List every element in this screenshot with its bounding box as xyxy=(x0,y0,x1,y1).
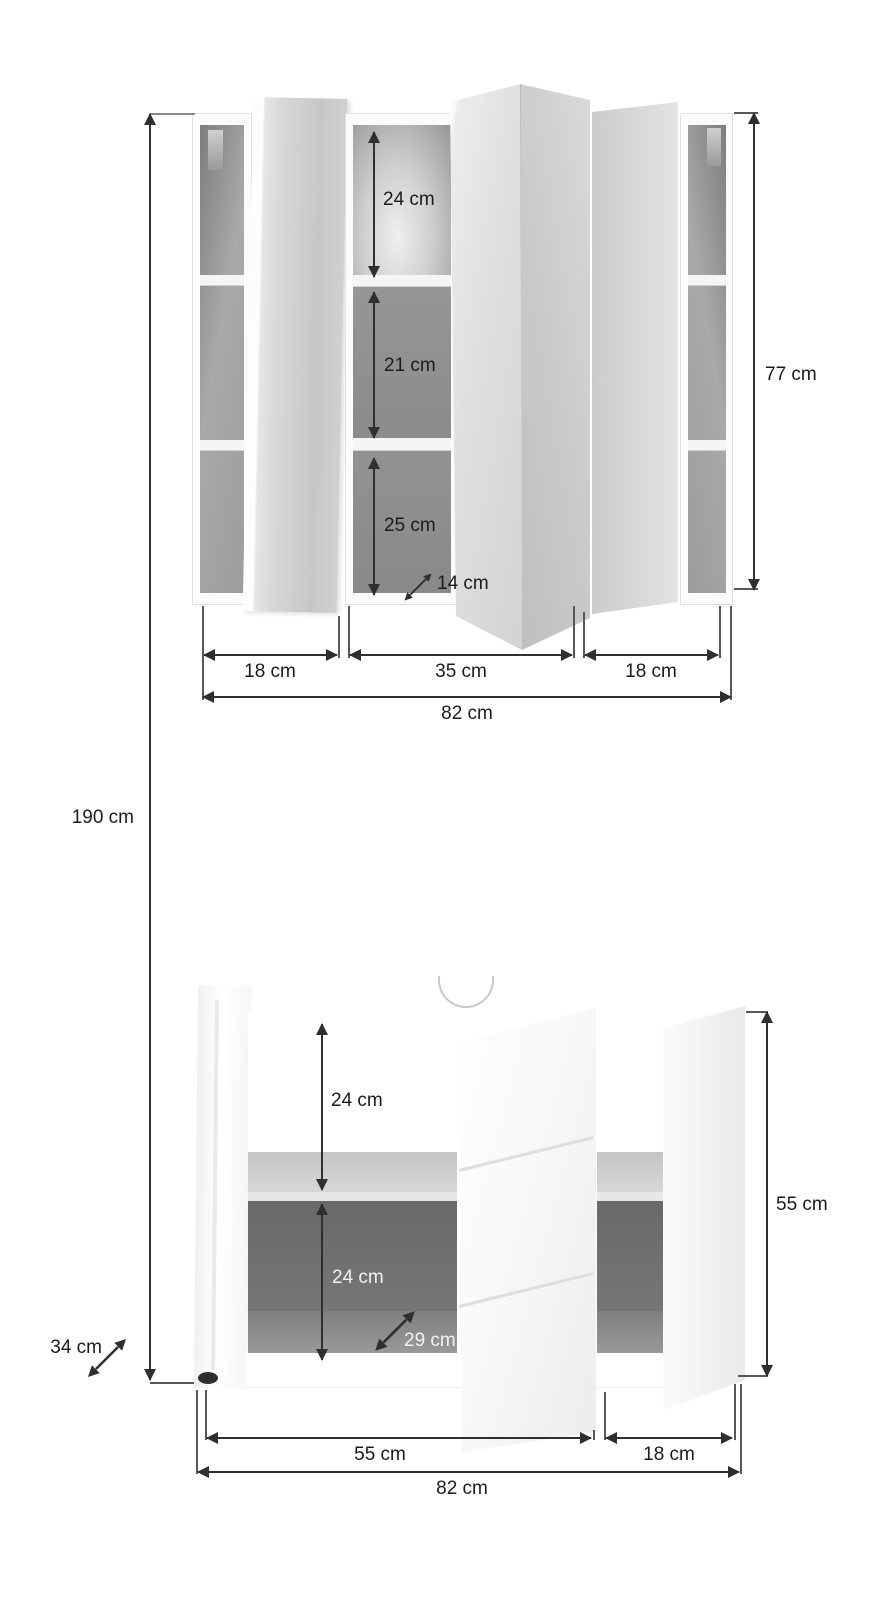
extension-line xyxy=(338,616,340,658)
dim-vanity-section-left-line xyxy=(207,1437,591,1439)
mirror-door-left xyxy=(243,97,348,613)
furniture-dimension-diagram: 190 cm 77 cm 24 cm 21 cm 25 cm 14 cm 18 … xyxy=(0,0,883,1600)
vanity-bottom-panel xyxy=(246,1353,664,1388)
dim-label-body-depth: 34 cm xyxy=(28,1337,102,1359)
dim-label-vanity-width: 82 cm xyxy=(402,1478,522,1500)
dim-label-mirror-cabinet-width: 82 cm xyxy=(407,703,527,725)
dim-vanity-compartment-2-line xyxy=(321,1204,323,1360)
mirror-door-right xyxy=(592,102,678,614)
extension-line xyxy=(573,606,575,658)
center-shelf-lower xyxy=(353,438,451,451)
left-column-shelf xyxy=(200,440,244,451)
dim-mirror-cabinet-height-line xyxy=(753,113,755,590)
vanity-foot-left xyxy=(198,1372,218,1384)
mirror-cabinet-right-column-interior xyxy=(688,125,726,593)
dim-label-compartment-2: 21 cm xyxy=(384,355,436,377)
dim-vanity-compartment-1-line xyxy=(321,1024,323,1190)
vanity-middle-door xyxy=(457,1004,597,1454)
extension-line xyxy=(593,1430,595,1440)
extension-line xyxy=(719,606,721,658)
dim-label-vanity-compartment-1: 24 cm xyxy=(331,1090,383,1112)
dim-section-center-line xyxy=(350,654,572,656)
vanity-shelf-top-surface xyxy=(248,1152,457,1192)
dim-compartment-1-line xyxy=(373,132,375,277)
extension-line xyxy=(150,1382,196,1384)
vanity-left-door xyxy=(194,986,250,1389)
vanity-right-floor xyxy=(597,1311,663,1353)
dim-label-mirror-depth: 14 cm xyxy=(437,573,489,595)
mirror-door-center-left-panel xyxy=(448,84,522,654)
dim-section-right-line xyxy=(585,654,718,656)
extension-line xyxy=(196,1390,198,1474)
vanity-lower-compartment xyxy=(248,1201,457,1311)
dim-label-section-right: 18 cm xyxy=(601,661,701,683)
vanity-interior-back xyxy=(248,1010,457,1152)
wall-bracket-left-icon xyxy=(208,130,223,170)
dim-label-mirror-cabinet-height: 77 cm xyxy=(765,364,817,386)
mirror-cabinet-left-column-interior xyxy=(200,125,244,593)
left-column-shelf xyxy=(200,275,244,286)
extension-line xyxy=(740,1384,742,1474)
dim-total-height-line xyxy=(149,114,151,1380)
depth-arrow-icon xyxy=(396,570,440,604)
dim-label-vanity-height: 55 cm xyxy=(776,1194,828,1216)
wall-bracket-right-icon xyxy=(707,128,721,166)
right-column-shelf xyxy=(688,275,726,286)
dim-label-section-left: 18 cm xyxy=(220,661,320,683)
dim-compartment-3-line xyxy=(373,458,375,595)
vanity-right-shelf xyxy=(597,1152,663,1192)
vanity-shelf-front-edge xyxy=(248,1192,457,1201)
dim-label-vanity-compartment-2: 24 cm xyxy=(332,1267,384,1289)
dim-label-compartment-1: 24 cm xyxy=(383,189,435,211)
mirror-door-center-right-panel xyxy=(520,84,592,654)
dim-compartment-2-line xyxy=(373,292,375,438)
right-column-shelf xyxy=(688,440,726,451)
extension-line xyxy=(150,113,195,115)
dim-mirror-cabinet-width-line xyxy=(203,696,731,698)
dim-vanity-section-right-line xyxy=(606,1437,732,1439)
vanity-right-shelf-edge xyxy=(597,1192,663,1201)
extension-line xyxy=(734,1384,736,1440)
dim-label-section-center: 35 cm xyxy=(411,661,511,683)
dim-label-vanity-section-right: 18 cm xyxy=(619,1444,719,1466)
dim-label-compartment-3: 25 cm xyxy=(384,515,436,537)
extension-line xyxy=(730,606,732,700)
dim-label-vanity-section-left: 55 cm xyxy=(330,1444,430,1466)
dim-label-total-height: 190 cm xyxy=(38,807,134,829)
vanity-right-lower-compartment xyxy=(597,1201,663,1311)
dim-label-vanity-depth: 29 cm xyxy=(404,1330,456,1352)
dim-vanity-height-line xyxy=(766,1012,768,1376)
dim-vanity-width-line xyxy=(198,1471,739,1473)
vanity-right-interior-back xyxy=(597,1010,663,1152)
vanity-right-door xyxy=(663,1006,745,1410)
dim-section-left-line xyxy=(204,654,337,656)
